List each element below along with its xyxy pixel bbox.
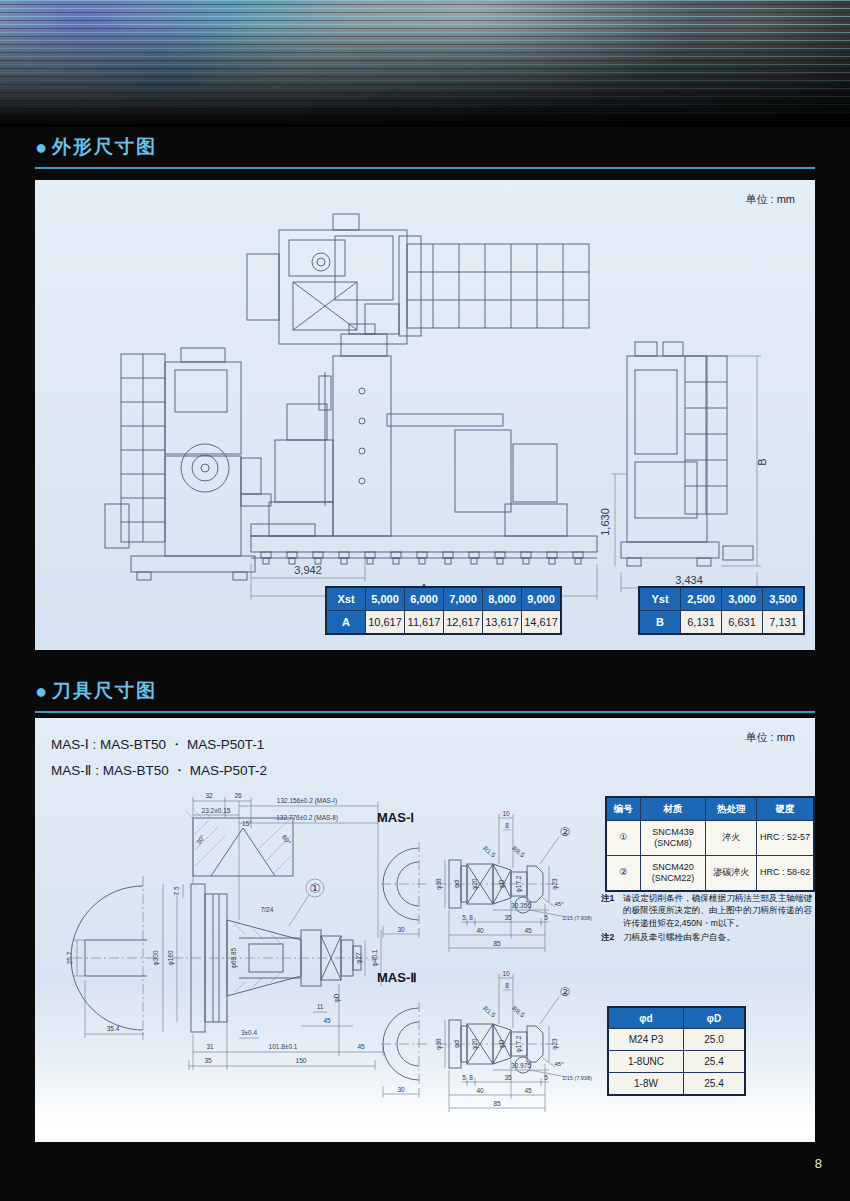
col-header: 2,500 bbox=[681, 587, 722, 611]
dimension-lines bbox=[251, 356, 761, 600]
dim-label: 132.156±0.2 (MAS-Ⅰ) bbox=[277, 798, 337, 805]
cell: 10,617 bbox=[366, 611, 405, 635]
table-corner: Xst bbox=[326, 587, 366, 611]
col-header: φD bbox=[684, 1007, 746, 1029]
page-number: 8 bbox=[815, 1156, 822, 1171]
tool-side-half-view bbox=[71, 876, 159, 1040]
cell: 6,131 bbox=[681, 611, 722, 635]
bullet-icon: ● bbox=[35, 681, 47, 701]
dim-label: 8 bbox=[469, 1075, 473, 1082]
dim-label: 45 bbox=[357, 1044, 364, 1051]
machine-outline-drawing: 3,942 A 1,630 B 3,434 bbox=[35, 206, 815, 604]
table-row: 1-8UNC 25.4 bbox=[608, 1051, 745, 1073]
row-label: A bbox=[326, 611, 366, 635]
spindle-taper-svg bbox=[43, 788, 403, 1088]
dim-label: 11 bbox=[317, 1004, 324, 1011]
dim-label: φ17.2 bbox=[516, 876, 523, 893]
dim-label: 3±0.4 bbox=[241, 1030, 257, 1037]
note-text: 请设定切削条件，确保根据刀柄法兰部及主轴端键的极限强度所决定的、由上图中的刀柄所… bbox=[623, 892, 815, 929]
cell: M24 P3 bbox=[608, 1029, 684, 1051]
dim-label: 8 bbox=[505, 983, 509, 990]
table-row: 1-8W 25.4 bbox=[608, 1073, 745, 1096]
dim-label: φD bbox=[499, 880, 506, 889]
unit-label: 单位 : mm bbox=[746, 730, 796, 745]
mas-spec-lines: MAS-Ⅰ : MAS-BT50 ・ MAS-P50T-1 MAS-Ⅱ : MA… bbox=[51, 732, 267, 784]
dim-label: 35 bbox=[504, 1075, 511, 1082]
mas2-spec: MAS-Ⅱ : MAS-BT50 ・ MAS-P50T-2 bbox=[51, 758, 267, 784]
cell-treatment: 渗碳淬火 bbox=[706, 856, 756, 892]
dim-partial-height: 1,630 bbox=[599, 508, 611, 536]
tool-main-section bbox=[173, 811, 379, 1032]
spindle-taper-drawing: 322623.2±0.15132.156±0.2 (MAS-Ⅰ)132.776±… bbox=[43, 788, 403, 1088]
col-header: 硬度 bbox=[756, 797, 814, 821]
section-title: 刀具尺寸图 bbox=[52, 678, 157, 704]
dim-label: 5 bbox=[462, 915, 466, 922]
cell-no: ② bbox=[606, 856, 640, 892]
cell: 13,617 bbox=[483, 611, 522, 635]
y-stroke-table: Yst 2,500 3,000 3,500 B 6,131 6,631 7,13… bbox=[638, 586, 805, 635]
dim-label: 8 bbox=[469, 915, 473, 922]
cell: 25.0 bbox=[684, 1029, 746, 1051]
cell: 1-8UNC bbox=[608, 1051, 684, 1073]
mas2-pullstud-svg bbox=[371, 966, 606, 1118]
dim-label: φ20 bbox=[472, 1038, 479, 1049]
dim-label: 150 bbox=[296, 1058, 307, 1065]
mas2-pullstud-drawing: MAS-Ⅱ bbox=[371, 966, 606, 1118]
dim-label: 40 bbox=[476, 928, 483, 935]
dim-label: 15° bbox=[242, 821, 252, 828]
pullstud-profile bbox=[437, 837, 567, 917]
col-header: 9,000 bbox=[522, 587, 562, 611]
dim-label: 23.2±0.15 bbox=[202, 808, 231, 815]
dim-label: 85 bbox=[493, 1101, 500, 1108]
dim-label: φ69.85 bbox=[231, 948, 238, 968]
cell: 6,631 bbox=[722, 611, 763, 635]
cell: 7,131 bbox=[763, 611, 805, 635]
cell-material: SNCM420 (SNCM22) bbox=[640, 856, 706, 892]
machine-column-bed-view bbox=[251, 324, 597, 564]
dim-label: 30.356 bbox=[511, 903, 531, 910]
dim-label: 30.975 bbox=[511, 1063, 531, 1070]
dim-label: φD bbox=[334, 994, 341, 1003]
cell: 11,617 bbox=[405, 611, 444, 635]
dim-label: 32 bbox=[205, 793, 212, 800]
mas2-drawing-label: MAS-Ⅱ bbox=[377, 970, 417, 985]
col-header: φd bbox=[608, 1007, 684, 1029]
dim-label: 26 bbox=[234, 793, 241, 800]
dim-label: φ160 bbox=[168, 950, 175, 965]
note-2: 注2 刀柄及牵引螺栓由客户自备。 bbox=[601, 931, 815, 943]
note-text: 刀柄及牵引螺栓由客户自备。 bbox=[623, 931, 815, 943]
mas1-spec: MAS-Ⅰ : MAS-BT50 ・ MAS-P50T-1 bbox=[51, 732, 267, 758]
dim-label: 10 bbox=[502, 971, 509, 978]
machine-side-view bbox=[621, 342, 753, 566]
dim-label: 45 bbox=[524, 1088, 531, 1095]
col-header: 热处理 bbox=[706, 797, 756, 821]
machine-plan-view bbox=[247, 214, 589, 344]
cell-no: ① bbox=[606, 821, 640, 856]
col-header: 材质 bbox=[640, 797, 706, 821]
dim-label: φ17.2 bbox=[516, 1036, 523, 1053]
dim-label: ② bbox=[560, 826, 571, 838]
dim-partial-length: 3,942 bbox=[294, 564, 322, 576]
row-label: B bbox=[639, 611, 681, 635]
dim-label: φ23 bbox=[552, 878, 559, 889]
dim-label: 7/24 bbox=[261, 907, 274, 914]
col-header: 3,000 bbox=[722, 587, 763, 611]
table-row: M24 P3 25.0 bbox=[608, 1029, 745, 1051]
dim-label: 35 bbox=[504, 915, 511, 922]
unit-label: 单位 : mm bbox=[746, 192, 796, 207]
section-title: 外形尺寸图 bbox=[52, 134, 157, 160]
dim-label: 5 bbox=[544, 915, 548, 922]
dim-label: φd bbox=[454, 1040, 461, 1048]
col-header: 7,000 bbox=[444, 587, 483, 611]
dim-depth: 3,434 bbox=[675, 574, 703, 586]
section-header-tools: ● 刀具尺寸图 bbox=[35, 678, 815, 713]
catalog-page: ● 外形尺寸图 单位 : mm bbox=[0, 0, 850, 1201]
dim-label: ① bbox=[309, 882, 321, 895]
material-table: 编号 材质 热处理 硬度 ① SNCM439 (SNCM8) 淬火 HRC : … bbox=[605, 796, 815, 892]
dim-label: 8 bbox=[505, 823, 509, 830]
cell: 1-8W bbox=[608, 1073, 684, 1096]
dim-label: φ27 bbox=[356, 952, 363, 963]
dim-label: 1/15 (7.938) bbox=[562, 916, 592, 922]
dim-label: 132.776±0.2 (MAS-Ⅱ) bbox=[276, 815, 338, 822]
dim-label: 45° bbox=[554, 1061, 563, 1067]
dim-label: 35 bbox=[204, 1058, 211, 1065]
banner-fade bbox=[0, 0, 850, 127]
dim-label: 31 bbox=[206, 1044, 213, 1051]
cell-hardness: HRC : 58-62 bbox=[756, 856, 814, 892]
mas1-pullstud-svg bbox=[371, 806, 606, 958]
dim-total-height: B bbox=[756, 458, 768, 465]
dim-label: φd bbox=[454, 880, 461, 888]
dim-label: 40 bbox=[476, 1088, 483, 1095]
tool-dimensions-panel: 单位 : mm MAS-Ⅰ : MAS-BT50 ・ MAS-P50T-1 MA… bbox=[35, 718, 815, 1142]
pullstud-half-view bbox=[381, 1002, 429, 1098]
cell-material: SNCM439 (SNCM8) bbox=[640, 821, 706, 856]
dim-label: 5 bbox=[544, 1075, 548, 1082]
dim-label: φ300 bbox=[153, 950, 160, 965]
dim-label: 45° bbox=[554, 901, 563, 907]
dim-label: 85 bbox=[493, 941, 500, 948]
dim-label: 35.4 bbox=[107, 1026, 120, 1033]
outline-dimensions-panel: 单位 : mm bbox=[35, 180, 815, 650]
cell-treatment: 淬火 bbox=[706, 821, 756, 856]
note-1: 注1 请设定切削条件，确保根据刀柄法兰部及主轴端键的极限强度所决定的、由上图中的… bbox=[601, 892, 815, 929]
dim-label: 7.5 bbox=[174, 886, 181, 895]
dim-label: 30 bbox=[397, 1087, 404, 1094]
table-row: ① SNCM439 (SNCM8) 淬火 HRC : 52-57 bbox=[606, 821, 814, 856]
cell: 14,617 bbox=[522, 611, 562, 635]
pullstud-profile bbox=[437, 997, 567, 1077]
pullstud-half-view bbox=[381, 842, 429, 938]
section-header-outline: ● 外形尺寸图 bbox=[35, 134, 815, 169]
cell: 12,617 bbox=[444, 611, 483, 635]
mas1-pullstud-drawing: MAS-Ⅰ bbox=[371, 806, 606, 958]
col-header: 8,000 bbox=[483, 587, 522, 611]
table-corner: Yst bbox=[639, 587, 681, 611]
col-header: 5,000 bbox=[366, 587, 405, 611]
col-header: 6,000 bbox=[405, 587, 444, 611]
decorative-banner bbox=[0, 0, 850, 127]
dim-label: 101.8±0.1 bbox=[269, 1044, 298, 1051]
col-header: 3,500 bbox=[763, 587, 805, 611]
dim-label: φ38 bbox=[436, 1038, 443, 1049]
dim-label: 1/15 (7.938) bbox=[562, 1076, 592, 1082]
note-label: 注1 bbox=[601, 892, 623, 929]
dim-label: φD bbox=[499, 1040, 506, 1049]
dim-label: 25.7 bbox=[67, 952, 74, 965]
thread-size-table: φd φD M24 P3 25.0 1-8UNC 25.4 1-8W 25.4 bbox=[607, 1006, 746, 1096]
cell: 25.4 bbox=[684, 1073, 746, 1096]
machine-front-view bbox=[105, 348, 271, 580]
mas1-drawing-label: MAS-Ⅰ bbox=[377, 810, 414, 825]
table-row: ② SNCM420 (SNCM22) 渗碳淬火 HRC : 58-62 bbox=[606, 856, 814, 892]
dim-label: 45 bbox=[323, 1018, 330, 1025]
note-label: 注2 bbox=[601, 931, 623, 943]
dim-label: φ38 bbox=[436, 878, 443, 889]
cell: 25.4 bbox=[684, 1051, 746, 1073]
col-header: 编号 bbox=[606, 797, 640, 821]
dim-label: 10 bbox=[502, 811, 509, 818]
cell-hardness: HRC : 52-57 bbox=[756, 821, 814, 856]
dim-label: 30 bbox=[397, 927, 404, 934]
dim-label: 45 bbox=[524, 928, 531, 935]
x-stroke-table: Xst 5,000 6,000 7,000 8,000 9,000 A 10,6… bbox=[325, 586, 562, 635]
dim-label: 5 bbox=[462, 1075, 466, 1082]
dim-label: φ23 bbox=[552, 1038, 559, 1049]
bullet-icon: ● bbox=[35, 137, 47, 157]
dim-label: ② bbox=[560, 986, 571, 998]
notes: 注1 请设定切削条件，确保根据刀柄法兰部及主轴端键的极限强度所决定的、由上图中的… bbox=[601, 892, 815, 946]
dim-label: φ20 bbox=[472, 878, 479, 889]
